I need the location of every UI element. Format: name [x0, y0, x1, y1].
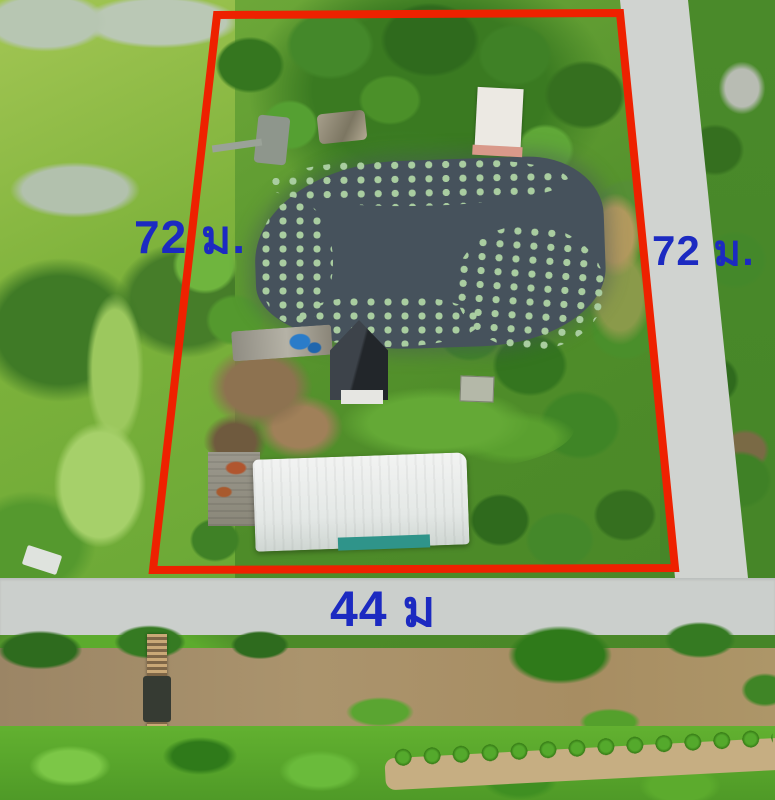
aerial-photo: 72 ม. 72 ม. 44 ม — [0, 0, 775, 800]
red-boundary-line — [153, 13, 675, 570]
dimension-label-bottom: 44 ม — [330, 584, 436, 634]
plot-boundary-overlay — [0, 0, 775, 800]
dimension-label-left: 72 ม. — [134, 214, 246, 260]
dimension-label-right: 72 ม. — [652, 230, 755, 272]
